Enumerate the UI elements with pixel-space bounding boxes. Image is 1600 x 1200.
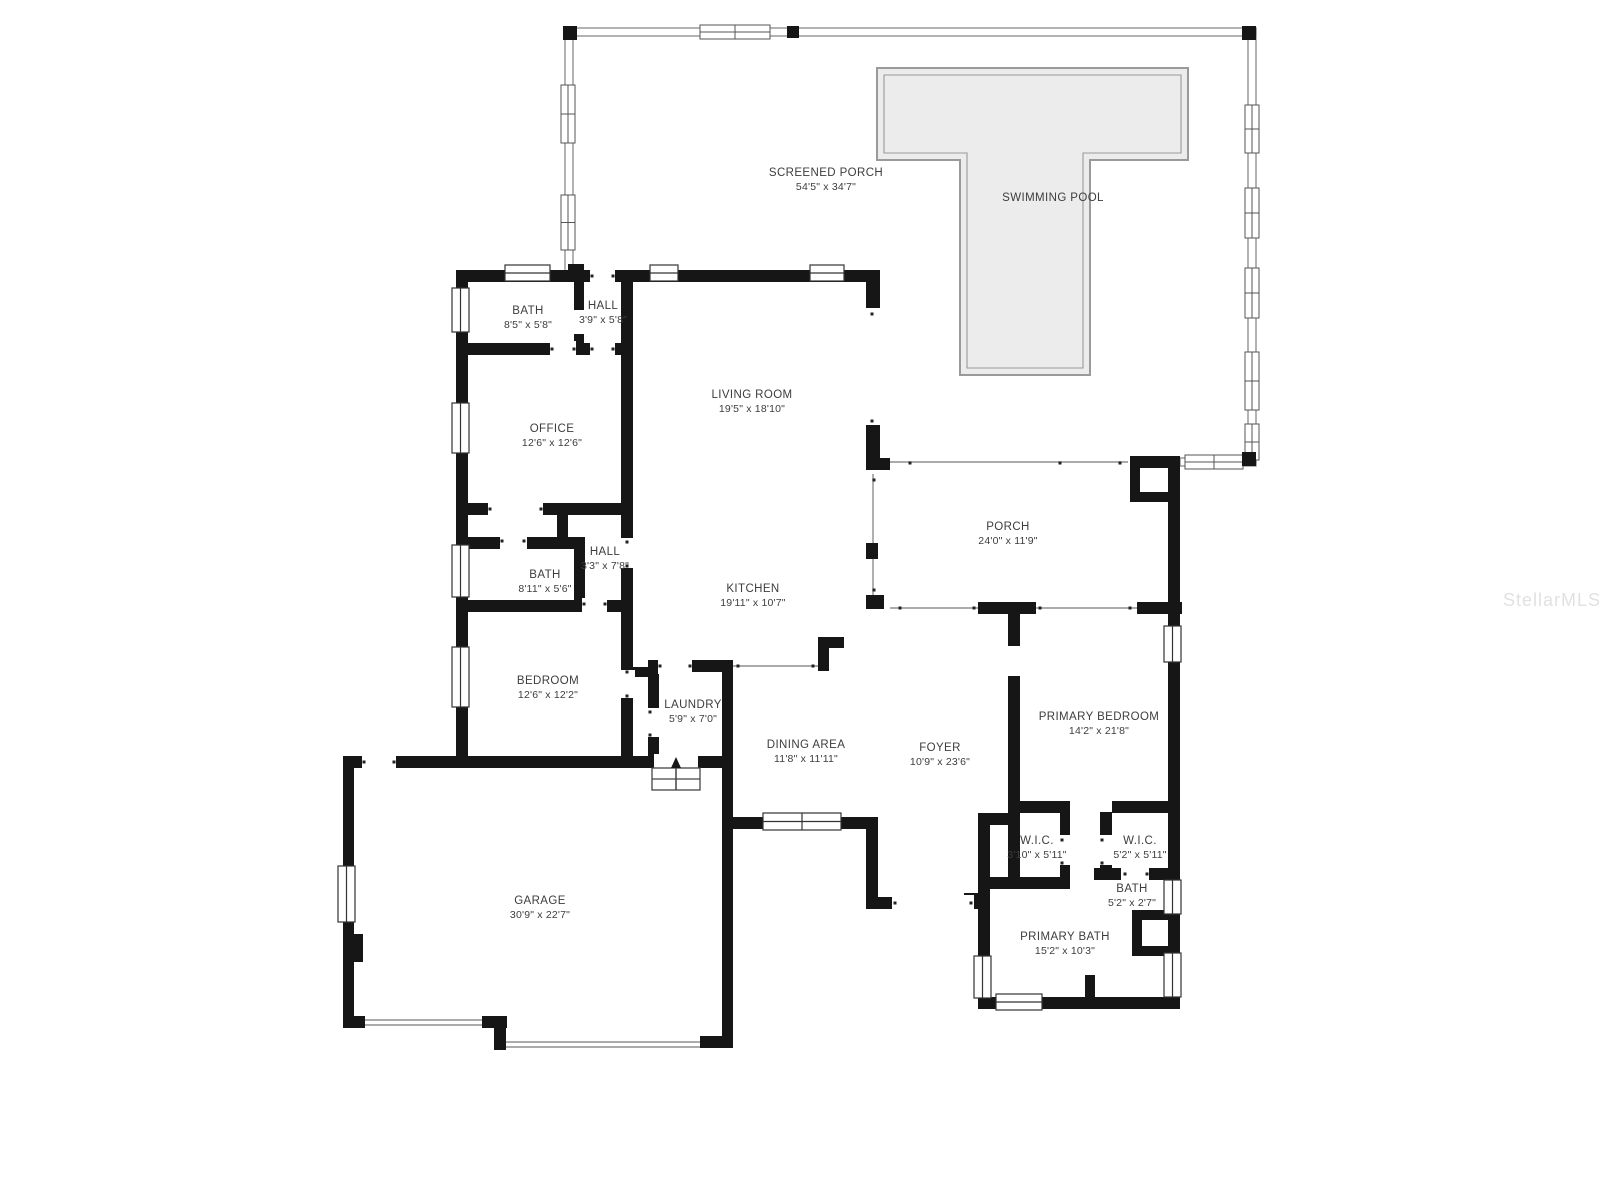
room-label-garage: GARAGE [514,895,566,907]
room-dims-porch: 24'0" x 11'9" [978,535,1037,547]
room-dims-hall-top: 3'9" x 5'8" [579,314,627,326]
room-dims-foyer: 10'9" x 23'6" [910,756,970,768]
room-label-wic-right: W.I.C. [1123,835,1157,847]
room-label-office: OFFICE [530,423,575,435]
room-label-kitchen: KITCHEN [726,583,779,595]
room-label-screened-porch: SCREENED PORCH [769,167,883,179]
room-label-dining-area: DINING AREA [767,739,846,751]
room-label-foyer: FOYER [919,742,961,754]
room-dims-hall-middle: 3'3" x 7'8" [581,560,629,572]
room-dims-primary-bedroom: 14'2" x 21'8" [1069,725,1129,737]
room-dims-dining-area: 11'8" x 11'11" [774,753,838,765]
room-label-primary-bedroom: PRIMARY BEDROOM [1039,711,1160,723]
room-dims-laundry: 5'9" x 7'0" [669,713,717,725]
room-label-wic-left: W.I.C. [1020,835,1054,847]
room-dims-office: 12'6" x 12'6" [522,437,582,449]
room-dims-bath-middle: 8'11" x 5'6" [518,583,571,595]
room-label-bath-top: BATH [512,305,543,317]
room-dims-living-room: 19'5" x 18'10" [719,403,785,415]
swimming-pool-shape [877,68,1188,375]
floor-plan-page: SCREENED PORCH 54'5" x 34'7" SWIMMING PO… [0,0,1600,1200]
room-label-porch: PORCH [986,521,1030,533]
room-dims-bath-top: 8'5" x 5'8" [504,319,552,331]
room-dims-garage: 30'9" x 22'7" [510,909,570,921]
room-dims-bath-small: 5'2" x 2'7" [1108,897,1156,909]
room-label-bath-middle: BATH [529,569,560,581]
room-dims-kitchen: 19'11" x 10'7" [720,597,786,609]
room-label-bedroom: BEDROOM [517,675,579,687]
room-label-bath-small: BATH [1116,883,1147,895]
floor-plan-drawing: SCREENED PORCH 54'5" x 34'7" SWIMMING PO… [0,0,1600,1200]
stellar-mls-watermark: StellarMLS [1503,590,1600,610]
room-label-primary-bath: PRIMARY BATH [1020,931,1110,943]
room-dims-wic-right: 5'2" x 5'11" [1113,849,1166,861]
room-label-living-room: LIVING ROOM [711,389,792,401]
room-dims-wic-left: 3'10" x 5'11" [1007,849,1066,861]
room-label-hall-middle: HALL [590,546,621,558]
room-label-laundry: LAUNDRY [664,699,722,711]
room-label-hall-top: HALL [588,300,619,312]
room-dims-bedroom: 12'6" x 12'2" [518,689,578,701]
room-label-swimming-pool: SWIMMING POOL [1002,192,1104,204]
room-dims-screened-porch: 54'5" x 34'7" [796,181,856,193]
room-dims-primary-bath: 15'2" x 10'3" [1035,945,1095,957]
